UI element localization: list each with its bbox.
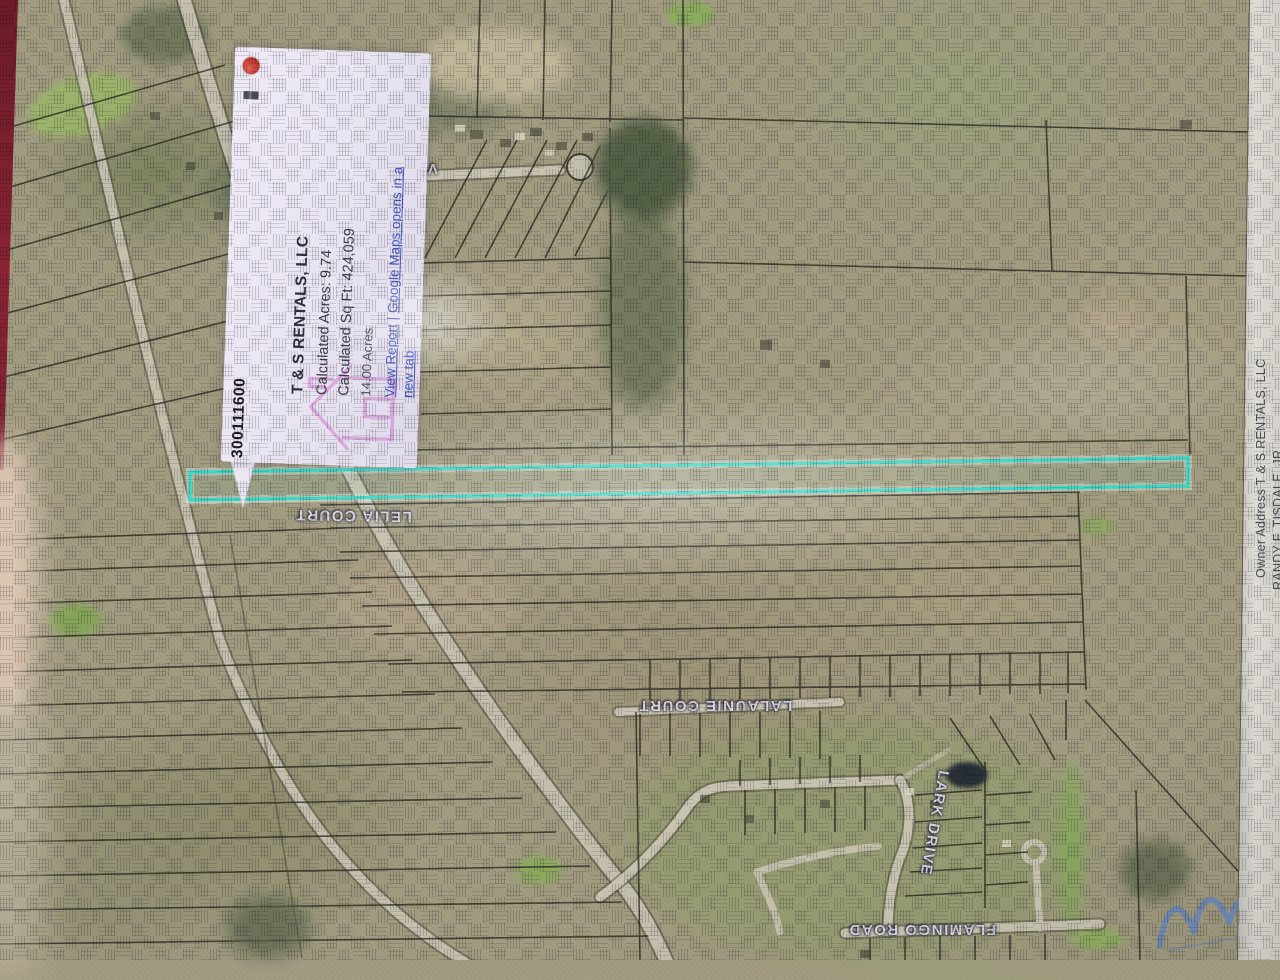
road-label-lalaunie-court: LALAUNIE COURT xyxy=(638,697,792,714)
deeded-acres: 14.00 Acres xyxy=(358,66,385,396)
parcel-map-canvas[interactable] xyxy=(0,0,1280,960)
popup-owner-title: T & S RENTALS, LLC xyxy=(289,64,319,394)
road-label-lelia-court: LELIA COURT xyxy=(295,506,412,525)
screen-photo-of-parcel-map: { "popup": { "parcel_number": "300111600… xyxy=(0,0,1280,960)
pin-icon[interactable] xyxy=(243,91,258,100)
close-icon[interactable] xyxy=(242,57,260,75)
popup-callout-tail xyxy=(226,455,262,511)
parcel-info-popup: 300111600 T & S RENTALS, LLC Calculated … xyxy=(221,47,431,469)
view-report-link[interactable]: View Report xyxy=(382,324,400,398)
parcel-number-label: 300111600 xyxy=(229,377,250,458)
owner-name-text-clipped: RANDY F. TISDALE, JR. xyxy=(1271,170,1280,590)
owner-address-text: Owner Address T & S RENTALS, LLC xyxy=(1254,168,1270,578)
road-label-flamingo-road: FLAMINGO ROAD xyxy=(848,921,996,938)
link-separator: | xyxy=(385,317,400,321)
popup-links: View Report | Google Maps opens in a new… xyxy=(381,147,426,398)
